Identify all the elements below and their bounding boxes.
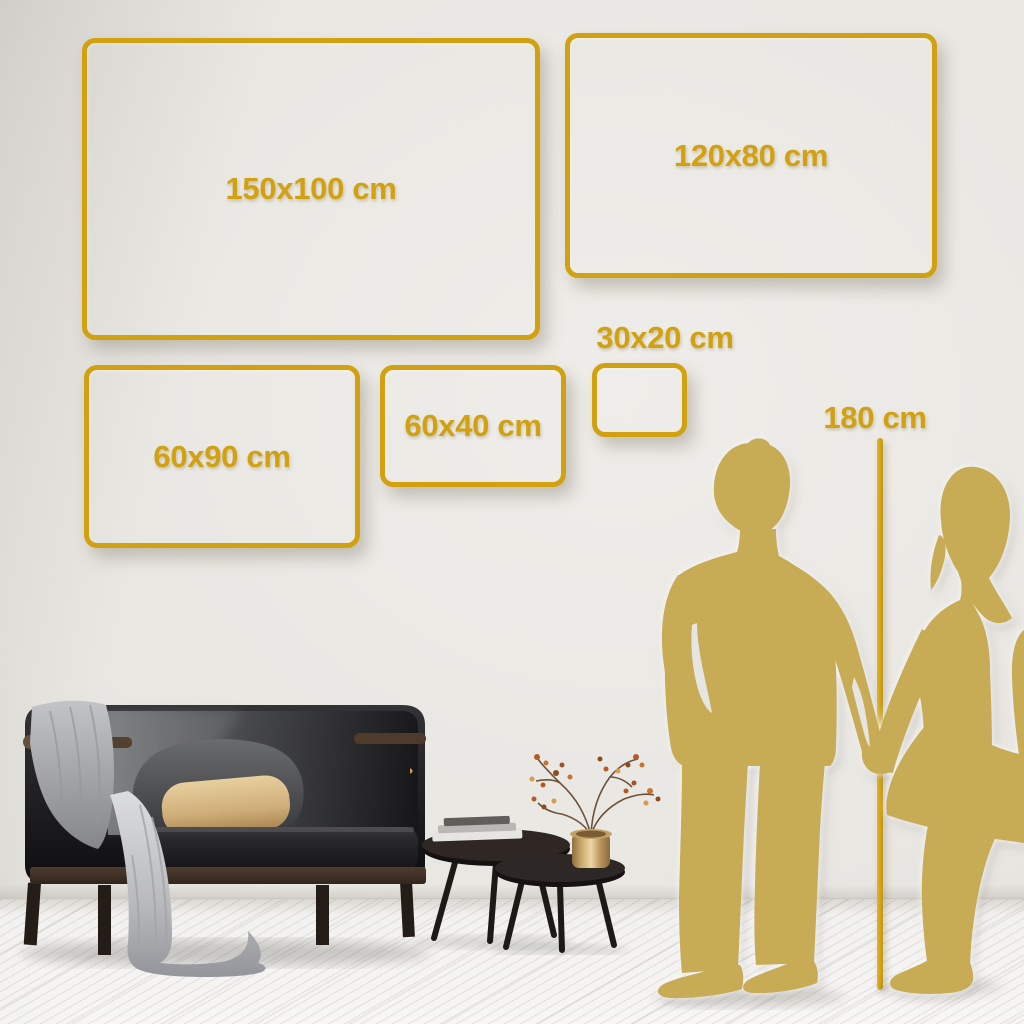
size-label-150x100: 150x100 cm xyxy=(225,171,396,207)
berries xyxy=(410,754,661,810)
size-frame-60x40: 60x40 cm xyxy=(380,365,566,487)
size-label-60x40: 60x40 cm xyxy=(404,408,541,444)
woman-hand xyxy=(870,744,896,774)
man-head xyxy=(714,438,790,534)
size-guide-scene: 150x100 cm 120x80 cm 60x90 cm 60x40 cm 3… xyxy=(0,0,1024,1024)
seat-cushion-highlight xyxy=(136,827,414,832)
size-frame-60x90: 60x90 cm xyxy=(84,365,360,548)
woman-hair-head xyxy=(940,467,1012,624)
woman-leg xyxy=(922,825,1000,965)
size-frame-150x100: 150x100 cm xyxy=(82,38,540,340)
seat-cushion xyxy=(132,827,418,871)
woman-foot xyxy=(890,959,973,994)
woman-hair-wisp xyxy=(930,535,945,590)
size-label-60x90: 60x90 cm xyxy=(153,439,290,475)
size-label-30x20: 30x20 cm xyxy=(585,320,745,356)
size-frame-120x80: 120x80 cm xyxy=(565,33,937,278)
sofa xyxy=(10,695,440,1005)
sofa-bottom-rail xyxy=(30,867,426,884)
branch xyxy=(536,759,654,835)
coffee-tables xyxy=(410,735,690,955)
size-label-120x80: 120x80 cm xyxy=(674,138,828,174)
woman-skirt xyxy=(886,727,1024,843)
man-right-leg xyxy=(754,763,825,965)
woman-silhouette xyxy=(870,467,1024,994)
books-stack xyxy=(432,815,523,841)
gold-vase xyxy=(570,829,612,868)
couple-silhouette xyxy=(640,425,1024,1010)
